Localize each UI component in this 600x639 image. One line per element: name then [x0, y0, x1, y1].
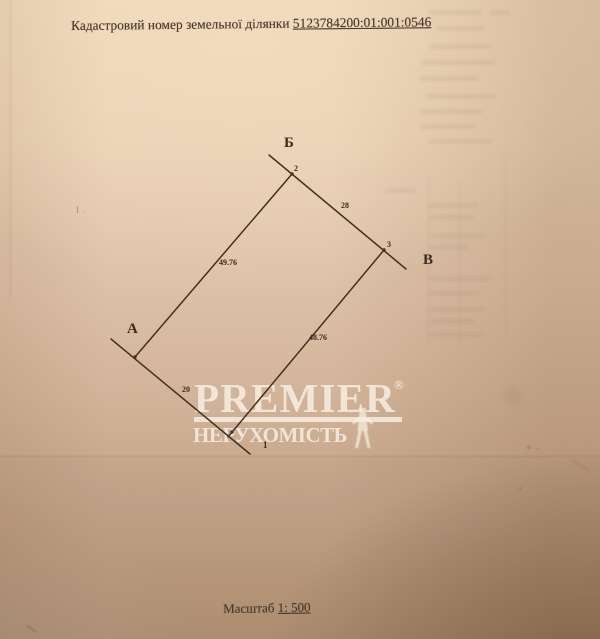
svg-text:49.76: 49.76 [219, 258, 237, 267]
svg-text:28: 28 [341, 201, 349, 210]
svg-text:2: 2 [294, 164, 298, 173]
svg-text:20: 20 [182, 385, 190, 394]
svg-text:1: 1 [263, 440, 268, 450]
svg-text:А: А [127, 321, 138, 337]
svg-text:Б: Б [284, 135, 294, 151]
svg-text:48.76: 48.76 [309, 333, 327, 342]
svg-text:3: 3 [387, 240, 391, 249]
svg-text:В: В [423, 252, 433, 268]
